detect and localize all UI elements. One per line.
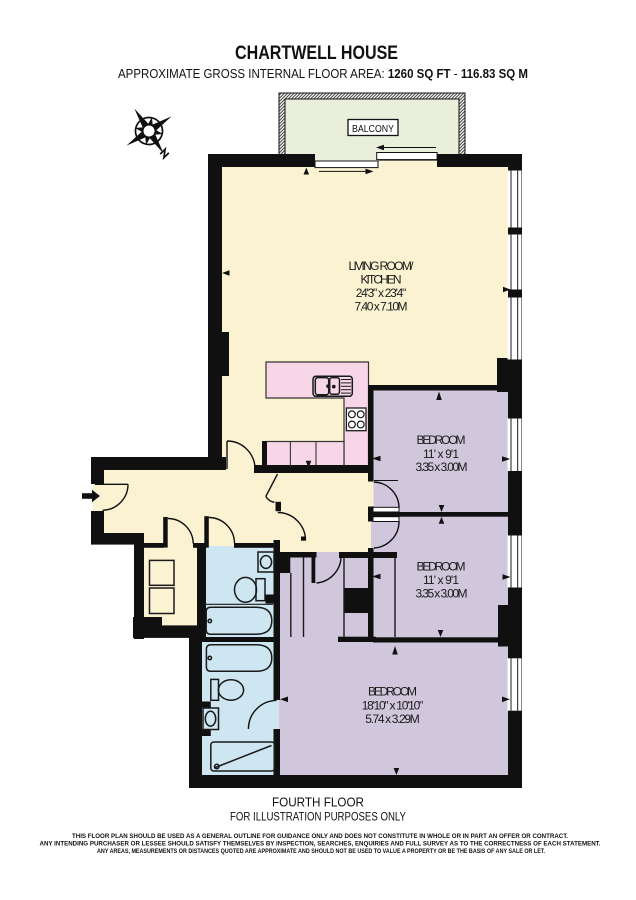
- svg-text:ANY INTENDING PURCHASER OR LES: ANY INTENDING PURCHASER OR LESSEE SHOULD…: [40, 841, 601, 848]
- svg-text:18'10" x 10'10": 18'10" x 10'10": [362, 699, 424, 713]
- svg-text:3.35 x 3.00M: 3.35 x 3.00M: [416, 460, 468, 474]
- svg-text:11' x 9'1: 11' x 9'1: [423, 447, 459, 461]
- svg-text:CHARTWELL HOUSE: CHARTWELL HOUSE: [235, 43, 398, 64]
- svg-text:3.35 x 3.00M: 3.35 x 3.00M: [416, 587, 468, 601]
- svg-text:BEDROOM: BEDROOM: [417, 560, 466, 574]
- svg-text:24'3" x 23'4": 24'3" x 23'4": [356, 286, 407, 300]
- svg-text:7.40 x 7.10M: 7.40 x 7.10M: [355, 300, 408, 314]
- svg-text:KITCHEN: KITCHEN: [361, 273, 402, 287]
- svg-text:APPROXIMATE GROSS INTERNAL FLO: APPROXIMATE GROSS INTERNAL FLOOR AREA: 1…: [118, 66, 528, 81]
- svg-text:5.74 x 3.29M: 5.74 x 3.29M: [365, 712, 420, 726]
- svg-text:BEDROOM: BEDROOM: [417, 433, 466, 447]
- svg-text:BEDROOM: BEDROOM: [368, 685, 417, 699]
- svg-text:LIVING ROOM/: LIVING ROOM/: [349, 259, 415, 273]
- svg-text:FOR ILLUSTRATION PURPOSES ONLY: FOR ILLUSTRATION PURPOSES ONLY: [230, 812, 406, 824]
- svg-text:11' x 9'1: 11' x 9'1: [423, 573, 459, 587]
- svg-text:FOURTH FLOOR: FOURTH FLOOR: [272, 795, 364, 810]
- svg-text:ANY AREAS, MEASUREMENTS OR DIS: ANY AREAS, MEASUREMENTS OR DISTANCES QUO…: [97, 848, 545, 855]
- svg-text:BALCONY: BALCONY: [352, 123, 394, 135]
- svg-text:THIS FLOOR PLAN SHOULD BE USED: THIS FLOOR PLAN SHOULD BE USED AS A GENE…: [72, 833, 568, 840]
